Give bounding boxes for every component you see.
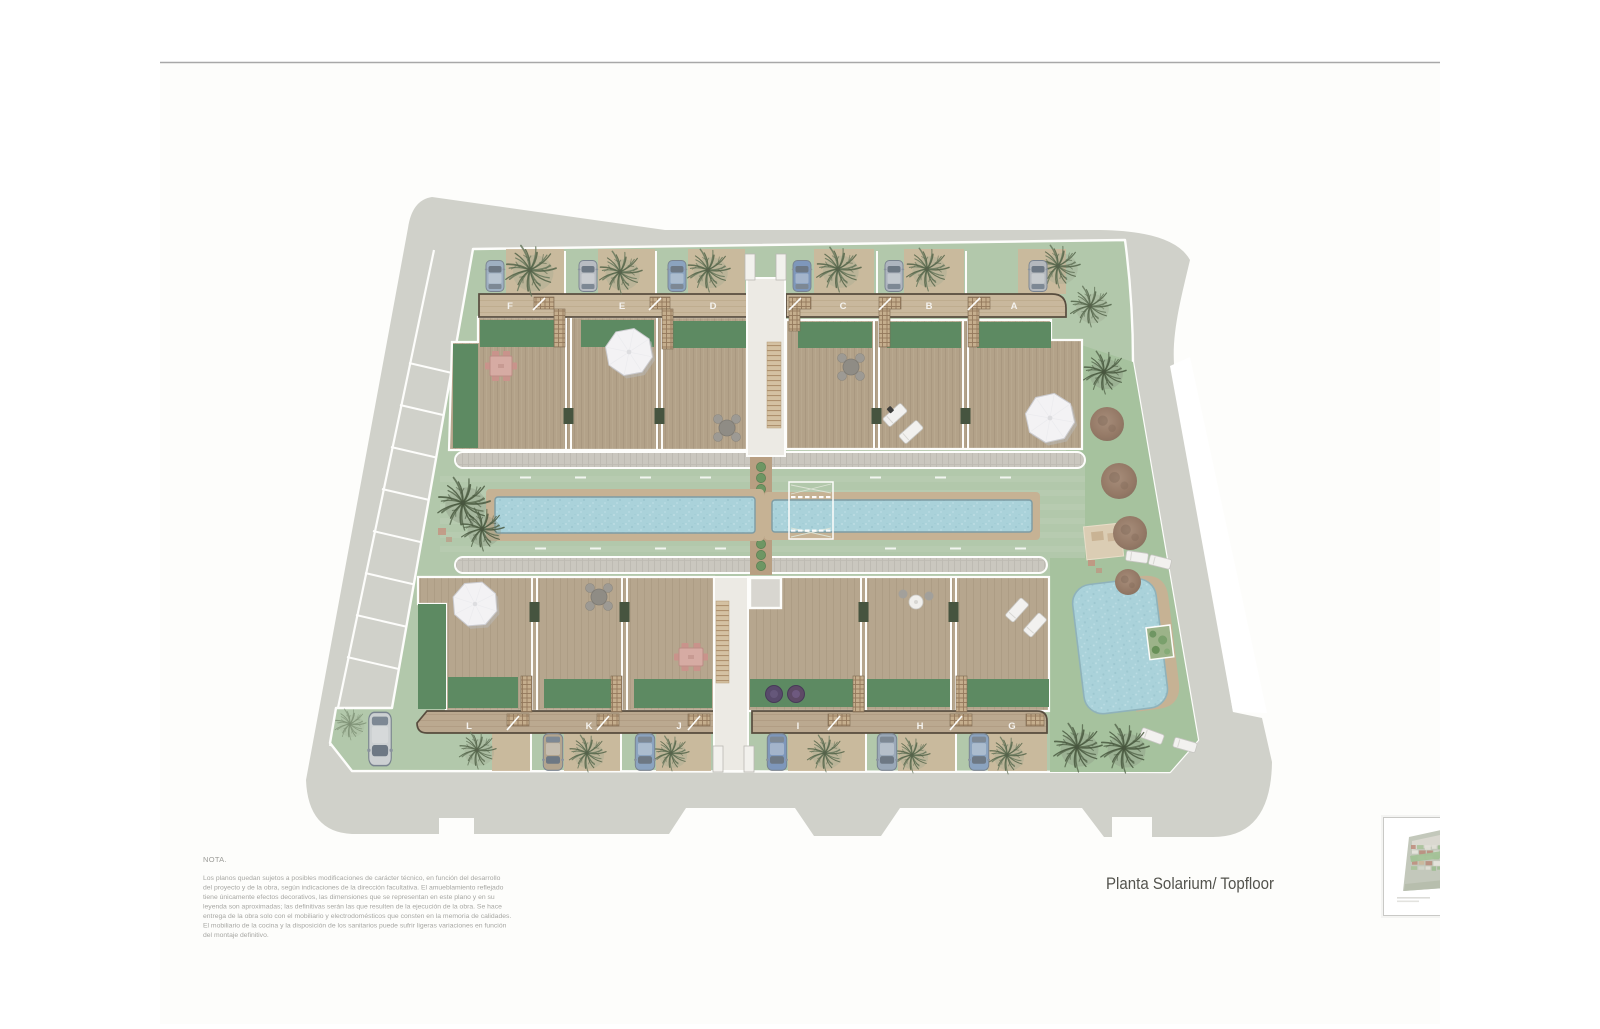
svg-text:F: F (507, 301, 513, 312)
svg-text:D: D (710, 301, 717, 312)
svg-text:NOTA.: NOTA. (203, 855, 227, 864)
svg-text:K: K (586, 721, 593, 732)
svg-text:L: L (466, 721, 472, 732)
svg-text:H: H (917, 721, 924, 732)
svg-text:E: E (619, 301, 625, 312)
svg-text:Planta Solarium/ Topfloor: Planta Solarium/ Topfloor (1106, 875, 1274, 893)
svg-text:Los planos quedan sujetos a po: Los planos quedan sujetos a posibles mod… (203, 875, 511, 939)
svg-text:G: G (1008, 721, 1015, 732)
svg-text:C: C (840, 301, 847, 312)
svg-text:J: J (676, 721, 681, 732)
svg-text:I: I (797, 721, 800, 732)
svg-text:A: A (1011, 301, 1018, 312)
svg-text:B: B (926, 301, 933, 312)
